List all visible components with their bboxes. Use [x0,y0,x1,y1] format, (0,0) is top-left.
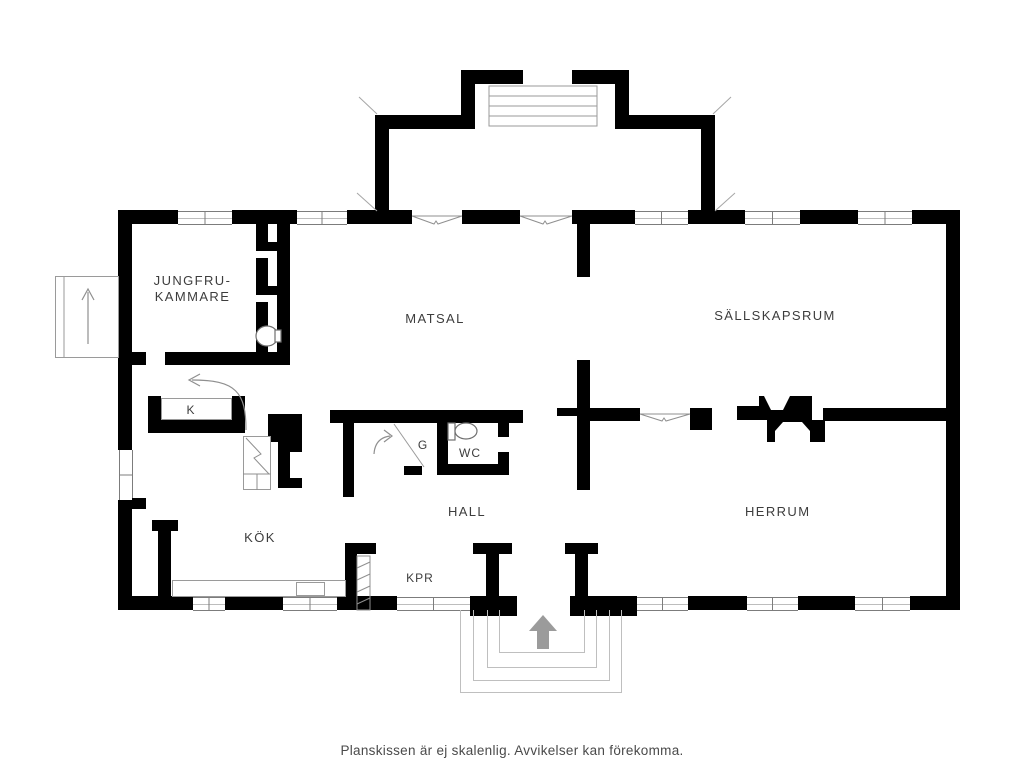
entrance-step [499,610,585,653]
wall-segment [118,596,193,610]
window-marker [178,211,232,225]
wall-segment [823,408,946,421]
room-label-sallskapsrum: SÄLLSKAPSRUM [700,308,850,324]
wall-segment [498,452,509,475]
room-label-jungfrukammare: JUNGFRU- KAMMARE [130,273,255,305]
room-label-hall: HALL [440,504,494,520]
window-marker [858,211,912,225]
toilet-icon [448,423,477,440]
window-marker [297,211,347,225]
wall-segment [256,302,268,352]
wall-segment [575,543,588,610]
wall-segment [557,408,577,416]
wall-segment [118,210,132,450]
room-label-matsal: MATSAL [385,311,485,327]
chimney-block [268,414,302,442]
room-label-line: JUNGFRU- [130,273,255,289]
wall-segment [132,352,146,365]
wall-segment [330,410,523,423]
wall-segment [946,210,960,610]
room-label-g: G [414,437,432,453]
wall-segment [148,420,245,433]
wall-segment [572,70,629,84]
kitchen-appliance [296,582,325,596]
window-marker [397,597,470,611]
wall-segment [345,543,357,610]
room-label-wc: WC [456,445,484,461]
wall-segment [343,423,354,497]
side-entrance-steps [55,276,119,358]
room-label-herrum: HERRUM [745,504,809,520]
wall-segment [461,70,523,84]
wall-segment [615,115,715,129]
wall-segment [132,498,146,509]
stair-flight [243,436,271,490]
wall-segment [577,360,590,490]
wall-segment [375,115,389,210]
wall-segment [375,115,475,129]
wall-segment [165,352,290,365]
wall-segment [701,115,715,210]
wall-segment [404,466,422,475]
wall-segment [118,500,132,610]
wall-segment [912,210,960,224]
window-marker [747,597,798,611]
wall-segment [347,210,412,224]
window-marker [745,211,800,225]
wall-segment [256,210,268,242]
niche-opening [290,452,302,478]
room-label-kok: KÖK [235,530,285,546]
wall-segment [690,408,712,430]
window-marker [635,211,688,225]
veranda-steps [489,86,597,126]
wall-segment [158,520,171,610]
wall-segment [688,210,745,224]
wall-segment [118,210,178,224]
wall-segment [910,596,960,610]
door-arc-arrow-icon [374,430,392,454]
room-label-line: KAMMARE [130,289,255,305]
wall-segment [256,286,290,295]
window-marker [283,597,337,611]
disclaimer-text: Planskissen är ej skalenlig. Avvikelser … [0,743,1024,758]
wall-segment [462,210,520,224]
window-marker [855,597,910,611]
wall-segment [798,596,855,610]
wall-segment [486,543,499,610]
wall-segment [688,596,747,610]
wall-segment [225,596,283,610]
wall-segment [256,258,268,286]
wall-segment [800,210,858,224]
wall-segment [256,242,290,251]
wall-segment [498,423,509,437]
wall-segment [152,520,178,531]
window-marker [637,597,688,611]
room-label-k: K [180,402,202,418]
wall-segment [590,408,640,421]
window-marker [193,597,225,611]
wall-segment [577,210,590,277]
window-marker [119,450,133,500]
fireplace-icon [737,396,825,442]
room-label-kpr: KPR [398,570,442,586]
floorplan-canvas: JUNGFRU- KAMMARE MATSAL SÄLLSKAPSRUM KÖK… [0,0,1024,768]
